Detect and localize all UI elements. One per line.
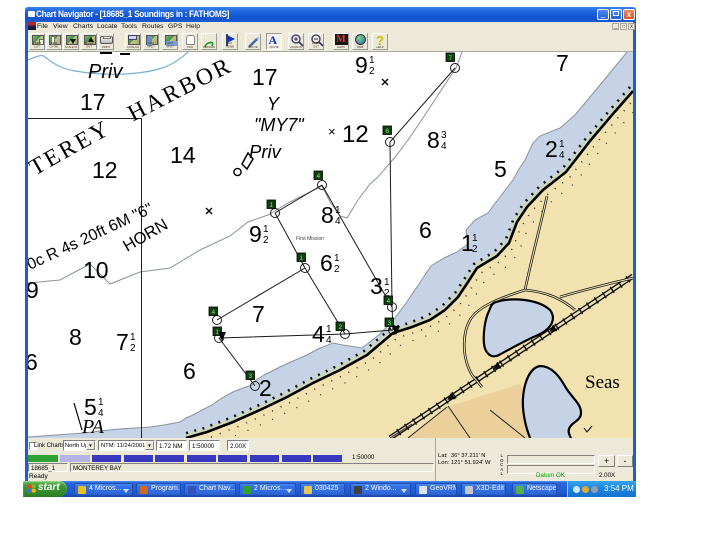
svg-text:4: 4 <box>559 150 565 161</box>
svg-text:5: 5 <box>494 156 507 182</box>
svg-text:1: 1 <box>559 139 565 150</box>
svg-text:7: 7 <box>448 55 452 62</box>
svg-text:1: 1 <box>384 277 390 288</box>
svg-text:3: 3 <box>370 273 383 299</box>
svg-text:1: 1 <box>269 202 273 209</box>
svg-text:2: 2 <box>130 343 136 354</box>
svg-text:2: 2 <box>334 264 340 275</box>
svg-text:4: 4 <box>386 298 390 305</box>
svg-text:7: 7 <box>116 329 129 355</box>
svg-text:1: 1 <box>98 397 104 408</box>
svg-text:First Mission: First Mission <box>296 236 324 242</box>
svg-text:2: 2 <box>369 66 375 77</box>
svg-text:Y: Y <box>267 94 281 114</box>
svg-text:6: 6 <box>385 128 389 135</box>
svg-text:7: 7 <box>252 301 265 327</box>
svg-text:HARBOR: HARBOR <box>124 52 237 127</box>
svg-text:PA: PA <box>81 416 105 438</box>
svg-text:8: 8 <box>427 127 440 153</box>
svg-text:1: 1 <box>326 324 332 335</box>
svg-text:1: 1 <box>369 55 375 66</box>
svg-text:7: 7 <box>556 52 569 76</box>
svg-text:1: 1 <box>472 233 478 244</box>
svg-text:6: 6 <box>28 349 38 375</box>
svg-text:1: 1 <box>335 205 341 216</box>
svg-text:×: × <box>328 124 336 139</box>
svg-text:1: 1 <box>299 255 303 262</box>
svg-text:2: 2 <box>545 136 558 162</box>
svg-text:17: 17 <box>252 64 278 90</box>
svg-text:"MY7": "MY7" <box>254 115 305 135</box>
svg-text:4: 4 <box>316 173 320 180</box>
svg-text:4: 4 <box>326 335 332 346</box>
svg-text:2: 2 <box>338 324 342 331</box>
svg-text:4: 4 <box>312 321 325 347</box>
svg-text:1: 1 <box>130 332 136 343</box>
svg-text:4: 4 <box>211 309 215 316</box>
svg-text:2: 2 <box>263 235 269 246</box>
svg-text:Seas: Seas <box>585 372 620 393</box>
svg-text:6: 6 <box>320 250 333 276</box>
svg-text:12: 12 <box>342 121 369 148</box>
svg-text:9: 9 <box>28 277 39 303</box>
svg-text:12: 12 <box>92 157 118 183</box>
svg-text:10: 10 <box>83 257 109 283</box>
svg-text:3: 3 <box>441 130 447 141</box>
svg-text:1: 1 <box>263 224 269 235</box>
svg-text:2: 2 <box>384 288 390 299</box>
svg-text:2: 2 <box>472 244 478 255</box>
svg-text:8: 8 <box>69 324 82 350</box>
svg-text:4: 4 <box>335 216 341 227</box>
svg-text:17: 17 <box>80 89 106 115</box>
svg-text:4: 4 <box>441 141 447 152</box>
svg-text:3: 3 <box>248 373 252 380</box>
svg-text:Priv: Priv <box>249 141 283 162</box>
svg-text:9: 9 <box>355 52 368 78</box>
svg-text:1: 1 <box>334 253 340 264</box>
svg-text:9: 9 <box>249 221 262 247</box>
svg-text:Priv: Priv <box>88 61 123 83</box>
svg-text:8: 8 <box>321 202 334 228</box>
svg-text:14: 14 <box>170 142 196 168</box>
svg-text:6: 6 <box>183 358 196 384</box>
svg-text:6: 6 <box>419 217 432 243</box>
svg-text:3: 3 <box>387 320 391 327</box>
svg-text:2: 2 <box>259 375 272 401</box>
